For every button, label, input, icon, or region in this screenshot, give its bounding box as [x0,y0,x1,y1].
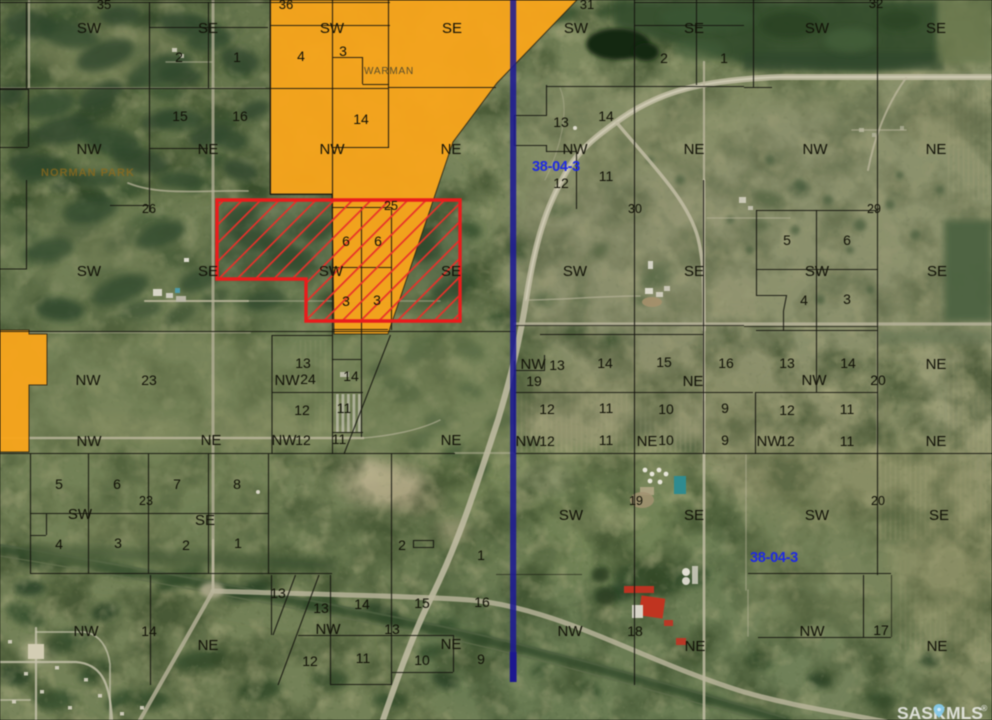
svg-text:23: 23 [139,494,153,508]
svg-text:15: 15 [172,108,188,124]
svg-text:14: 14 [354,596,370,612]
svg-text:NE: NE [637,433,658,450]
svg-text:6: 6 [374,233,382,249]
svg-text:4: 4 [55,536,63,552]
svg-text:17: 17 [873,622,889,638]
svg-text:36: 36 [279,0,293,12]
svg-text:12: 12 [779,402,795,418]
svg-text:12: 12 [294,402,310,418]
svg-text:NW: NW [74,623,100,640]
svg-text:24: 24 [300,371,316,387]
svg-text:NE: NE [441,141,462,158]
svg-text:1: 1 [720,50,728,66]
svg-text:3: 3 [373,292,381,308]
svg-text:14: 14 [141,623,157,639]
svg-text:SE: SE [684,507,704,524]
svg-text:15: 15 [414,595,430,611]
svg-text:3: 3 [339,43,347,59]
svg-text:NW: NW [320,141,346,158]
svg-text:SE: SE [442,20,462,37]
svg-text:NW: NW [803,141,829,158]
svg-text:12: 12 [539,433,555,449]
svg-text:6: 6 [113,476,121,492]
svg-text:SW: SW [564,20,589,37]
svg-text:11: 11 [840,401,855,417]
svg-text:12: 12 [539,401,555,417]
svg-text:SW: SW [563,263,588,280]
svg-text:12: 12 [295,432,311,448]
svg-text:30: 30 [628,202,642,216]
svg-text:14: 14 [353,111,369,127]
svg-text:9: 9 [721,400,729,416]
svg-text:SW: SW [319,263,344,280]
svg-text:29: 29 [867,202,881,216]
svg-text:13: 13 [384,621,400,637]
svg-text:®: ® [981,703,988,713]
svg-text:13: 13 [553,114,569,130]
svg-text:SE: SE [684,20,704,37]
svg-text:4: 4 [800,292,808,308]
svg-text:SE: SE [198,20,218,37]
svg-text:WARMAN: WARMAN [364,66,414,77]
svg-text:NW: NW [558,623,584,640]
svg-text:14: 14 [597,355,613,371]
svg-text:MLS: MLS [946,703,983,720]
svg-text:NE: NE [927,638,948,655]
svg-text:SW: SW [805,20,830,37]
svg-text:13: 13 [779,355,795,371]
svg-text:26: 26 [142,202,156,216]
svg-text:SW: SW [559,507,584,524]
svg-text:3: 3 [843,291,851,307]
svg-text:2: 2 [182,537,190,553]
svg-text:SW: SW [77,263,102,280]
svg-text:5: 5 [783,232,791,248]
svg-text:NE: NE [926,433,947,450]
svg-text:1: 1 [233,49,241,65]
svg-text:SW: SW [68,506,93,523]
svg-text:14: 14 [598,108,614,124]
svg-text:NW: NW [77,141,103,158]
svg-text:NW: NW [76,372,102,389]
svg-text:SW: SW [805,263,830,280]
svg-text:13: 13 [295,355,311,371]
svg-text:11: 11 [599,400,614,416]
svg-text:38-04-3: 38-04-3 [750,550,798,566]
svg-text:14: 14 [840,355,856,371]
svg-text:38-04-3: 38-04-3 [532,159,580,175]
svg-text:NW: NW [516,433,542,450]
svg-text:5: 5 [55,476,63,492]
svg-text:16: 16 [718,355,734,371]
svg-text:4: 4 [297,48,305,64]
svg-text:25: 25 [384,199,398,213]
svg-text:11: 11 [356,650,371,666]
svg-text:NE: NE [441,432,462,449]
svg-text:13: 13 [270,585,286,601]
svg-text:31: 31 [580,0,594,12]
svg-text:NE: NE [198,637,219,654]
svg-text:NORMAN PARK: NORMAN PARK [41,167,135,179]
svg-text:16: 16 [232,108,248,124]
svg-text:NE: NE [441,636,462,653]
svg-text:NW: NW [800,623,826,640]
svg-text:35: 35 [97,0,111,12]
svg-text:SW: SW [77,20,102,37]
svg-text:20: 20 [871,494,885,508]
svg-text:NE: NE [683,373,704,390]
svg-text:NE: NE [685,638,706,655]
svg-text:8: 8 [233,476,241,492]
svg-text:11: 11 [599,432,614,448]
svg-text:NW: NW [563,141,589,158]
svg-text:NE: NE [926,141,947,158]
svg-text:10: 10 [414,652,430,668]
svg-text:16: 16 [474,594,490,610]
svg-text:3: 3 [114,535,122,551]
svg-text:2: 2 [398,537,406,553]
svg-text:20: 20 [870,372,886,388]
svg-text:11: 11 [599,168,614,184]
svg-text:1: 1 [477,547,485,563]
svg-text:NW: NW [802,372,828,389]
svg-text:7: 7 [173,476,181,492]
svg-text:18: 18 [627,623,643,639]
svg-text:15: 15 [656,354,672,370]
svg-text:19: 19 [526,373,542,389]
svg-text:SE: SE [927,263,947,280]
svg-text:14: 14 [343,368,359,384]
svg-text:12: 12 [302,653,318,669]
svg-text:13: 13 [549,357,565,373]
svg-text:11: 11 [840,433,855,449]
svg-text:SW: SW [320,20,345,37]
svg-text:NE: NE [201,432,222,449]
svg-text:2: 2 [175,49,183,65]
svg-text:SE: SE [684,263,704,280]
svg-text:12: 12 [779,433,795,449]
svg-text:2: 2 [660,50,668,66]
svg-text:13: 13 [313,600,329,616]
svg-text:19: 19 [629,494,643,508]
svg-text:9: 9 [721,432,729,448]
svg-text:23: 23 [141,372,157,388]
svg-text:SE: SE [195,512,215,529]
svg-text:SE: SE [926,20,946,37]
svg-text:12: 12 [553,175,569,191]
svg-text:NW: NW [275,372,301,389]
svg-text:NE: NE [926,356,947,373]
svg-text:10: 10 [658,401,674,417]
svg-text:NW: NW [77,433,103,450]
svg-text:NE: NE [198,141,219,158]
svg-text:3: 3 [342,293,350,309]
svg-text:NW: NW [272,432,298,449]
svg-text:6: 6 [342,233,350,249]
svg-text:9: 9 [477,651,485,667]
svg-text:6: 6 [843,232,851,248]
svg-text:SE: SE [929,507,949,524]
svg-text:NE: NE [684,141,705,158]
svg-text:NW: NW [521,356,547,373]
svg-text:32: 32 [869,0,883,11]
svg-text:SW: SW [805,507,830,524]
svg-text:NW: NW [316,621,342,638]
svg-text:SE: SE [198,263,218,280]
svg-text:11: 11 [332,431,347,447]
svg-text:SE: SE [441,263,461,280]
svg-text:11: 11 [337,400,352,416]
svg-text:1: 1 [234,535,242,551]
svg-text:10: 10 [658,432,674,448]
